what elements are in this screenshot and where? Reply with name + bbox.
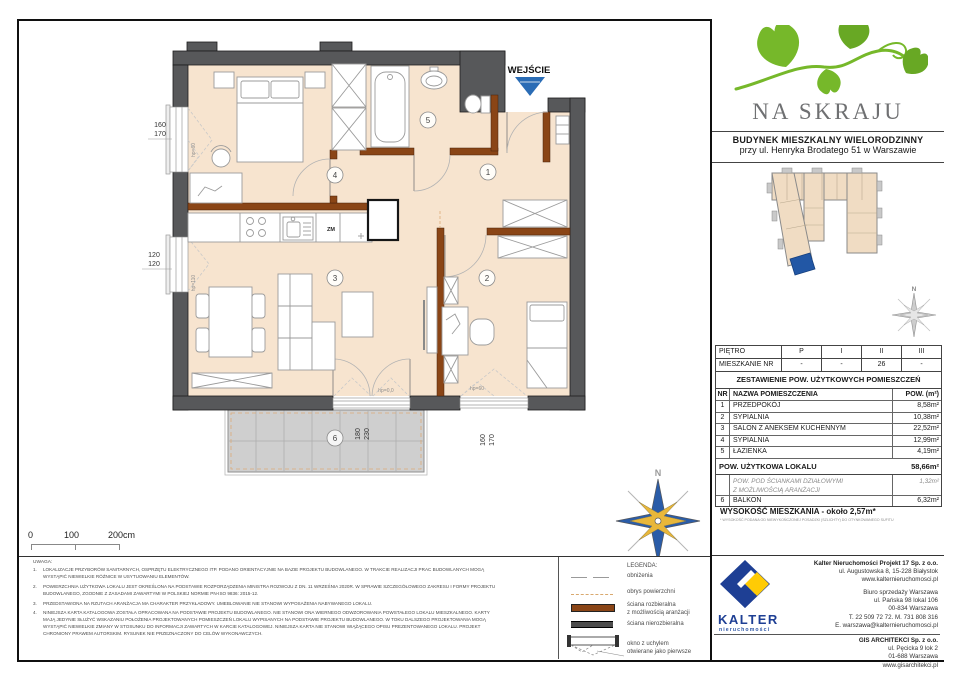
bottom-strip: UWAGA: 1. LOKALIZACJE PRZYBORÓW SANITARN… xyxy=(19,556,710,659)
floor-table: PIĘTRO P I II III MIESZKANIE NR - - 26 - xyxy=(715,345,942,372)
legend-title: LEGENDA: xyxy=(627,563,657,569)
scale-0: 0 xyxy=(28,530,33,540)
room-number-6: 6 xyxy=(333,434,338,443)
apt-3: - xyxy=(902,359,941,371)
building-line2: przy ul. Henryka Brodatego 51 w Warszawi… xyxy=(712,145,944,155)
apt-2: 26 xyxy=(862,359,902,371)
area-row: 5 ŁAZIENKA 4,19m² xyxy=(716,447,941,459)
apt-p: - xyxy=(782,359,822,371)
contact-block-2: Biuro sprzedaży Warszawa ul. Pańska 98 l… xyxy=(835,589,938,630)
balcony-row: 6 BALKON 6,32m² xyxy=(716,496,941,507)
floor-3: III xyxy=(902,346,941,358)
dim-balcony-b: 230 xyxy=(364,428,371,440)
apt-1: - xyxy=(822,359,862,371)
floor-1: I xyxy=(822,346,862,358)
dim-bottom-right-a: 160 xyxy=(480,434,487,446)
scale-200: 200cm xyxy=(108,530,135,540)
legend-label-obrys: obrys powierzchni xyxy=(627,589,675,597)
scale-100: 100 xyxy=(64,530,79,540)
area-table-title: ZESTAWIENIE POW. UŻYTKOWYCH POMIESZCZEŃ xyxy=(715,371,942,388)
contact-block-1: Kalter Nieruchomości Projekt 17 Sp. z o.… xyxy=(814,560,938,585)
floor-plan: WEJŚCIE 1 2 3 4 5 6 160 170 120 120 180 xyxy=(0,0,710,556)
room-number-1: 1 xyxy=(486,168,491,177)
legend: LEGENDA: obniżenia obrys powierzchni ści… xyxy=(558,557,710,659)
area-row: 4 SYPIALNIA 12,99m² xyxy=(716,436,941,448)
height-label: WYSOKOŚĆ MIESZKANIA - około 2,57m* xyxy=(720,507,938,516)
project-name: NA SKRAJU xyxy=(712,99,944,125)
siteplan-compass-n: N xyxy=(912,286,917,293)
entrance-label: WEJŚCIE xyxy=(508,64,551,76)
legend-symbol-okno xyxy=(567,633,625,659)
dim-left-top-a: 160 xyxy=(154,122,166,129)
legend-label-okno: okno z uchylemotwierane jako pierwsze xyxy=(627,641,691,656)
note-item: 1. LOKALIZACJE PRZYBORÓW SANITARNYCH, OS… xyxy=(33,567,498,581)
height-footnote: * WYSOKOŚĆ PODANA OD NIEWYKOŃCZONEJ POSA… xyxy=(720,518,938,522)
scale-bar: 0 100 200cm xyxy=(28,530,148,554)
hp-left-top: hp=60 xyxy=(191,143,197,157)
hp-bottom-right: hp=60 xyxy=(470,386,484,392)
room-number-4: 4 xyxy=(333,171,338,180)
building-line1: BUDYNEK MIESZKALNY WIELORODZINNY xyxy=(712,135,944,145)
area-row: 2 SYPIALNIA 10,38m² xyxy=(716,413,941,425)
balcony xyxy=(225,407,427,475)
legend-symbol-obnizenia xyxy=(571,575,609,583)
notes-block: UWAGA: 1. LOKALIZACJE PRZYBORÓW SANITARN… xyxy=(33,560,498,641)
dim-bottom-right-b: 170 xyxy=(489,434,496,446)
dim-left-top-b: 170 xyxy=(154,131,166,138)
area-header-row: NR NAZWA POMIESZCZENIA POW. (m²) xyxy=(716,389,941,401)
dim-left-bottom-b: 120 xyxy=(148,261,160,268)
area-total-row: POW. UŻYTKOWA LOKALU 58,66m² xyxy=(716,459,941,475)
room-number-2: 2 xyxy=(485,274,490,283)
contact-divider xyxy=(714,634,940,635)
kalter-logo-sub: nieruchomości xyxy=(719,627,770,633)
dishwasher-label: ZM xyxy=(327,227,335,233)
contact-block-3: GIS ARCHITEKCI Sp. z o.o. ul. Pęcicka 9 … xyxy=(859,637,938,670)
legend-symbol-rozbieralna xyxy=(571,604,615,616)
brand-section: NA SKRAJU xyxy=(712,19,944,132)
dim-balcony-a: 180 xyxy=(355,428,362,440)
catalog-card-page: WEJŚCIE 1 2 3 4 5 6 160 170 120 120 180 xyxy=(0,0,960,678)
floor-2: II xyxy=(862,346,902,358)
legend-symbol-nierozbieralna xyxy=(571,621,613,632)
compass-rose-icon: N xyxy=(616,468,700,556)
apt-label: MIESZKANIE NR xyxy=(716,359,782,371)
legend-label-rozbieralna: ściana rozbieralnaz możliwością aranżacj… xyxy=(627,602,690,617)
siteplan-section: N xyxy=(712,163,944,345)
compass-n-label: N xyxy=(655,468,662,478)
room-number-5: 5 xyxy=(426,116,431,125)
area-row: 1 PRZEDPOKÓJ 8,58m² xyxy=(716,401,941,413)
notes-title: UWAGA: xyxy=(33,560,498,565)
floor-p: P xyxy=(782,346,822,358)
site-plan: N xyxy=(712,163,944,345)
legend-label-obnizenia: obniżenia xyxy=(627,573,653,581)
siteplan-compass-icon: N xyxy=(892,286,936,337)
hp-balcony: hp=0,0 xyxy=(378,388,394,394)
room-number-3: 3 xyxy=(333,274,338,283)
ivy-logo-icon xyxy=(728,25,928,97)
hp-left-bottom: hp=110 xyxy=(191,275,197,292)
entrance-arrow-icon xyxy=(515,77,545,96)
dim-left-bottom-a: 120 xyxy=(148,252,160,259)
kalter-logo-name: KALTER xyxy=(718,612,779,627)
kalter-logo-icon xyxy=(719,559,771,609)
floor-label: PIĘTRO xyxy=(716,346,782,358)
note-item: 2. POWIERZCHNIA UŻYTKOWA LOKALU JEST OKR… xyxy=(33,584,498,598)
legend-symbol-obrys xyxy=(571,592,613,600)
address-section: BUDYNEK MIESZKALNY WIELORODZINNY przy ul… xyxy=(712,132,944,163)
height-block: WYSOKOŚĆ MIESZKANIA - około 2,57m* * WYS… xyxy=(720,507,938,522)
legend-label-nierozbieralna: ściana nierozbieralna xyxy=(627,621,684,629)
partition-row: POW. POD ŚCIANKAMI DZIAŁOWYMI Z MOŻLIWOŚ… xyxy=(716,475,941,496)
area-row: 3 SALON Z ANEKSEM KUCHENNYM 22,52m² xyxy=(716,424,941,436)
contact-section: KALTER nieruchomości Kalter Nieruchomośc… xyxy=(712,555,944,661)
note-item: 4. NINIEJSZA KARTA KATALOGOWA ZOSTAŁA OP… xyxy=(33,610,498,638)
area-table: NR NAZWA POMIESZCZENIA POW. (m²) 1 PRZED… xyxy=(715,388,942,507)
right-panel: NA SKRAJU BUDYNEK MIESZKALNY WIELORODZIN… xyxy=(710,19,944,660)
note-item: 3. PRZEDSTAWIONA NA RZUTACH ARANŻACJA MA… xyxy=(33,601,498,608)
